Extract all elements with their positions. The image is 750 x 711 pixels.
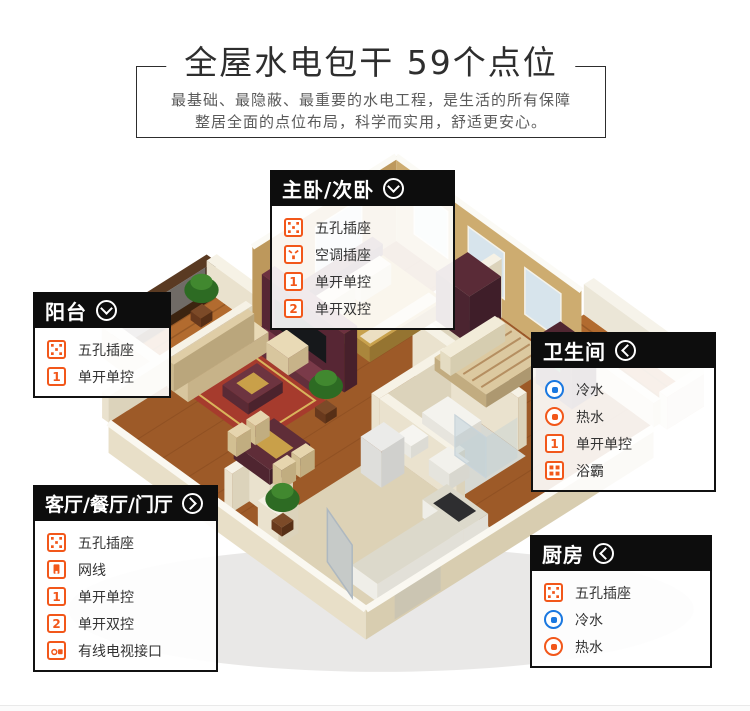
chevron-right-circle-icon xyxy=(182,493,203,514)
ac-socket-icon xyxy=(284,245,303,264)
callout-bedroom-body: 五孔插座 空调插座 1 单开单控 2 单开双控 xyxy=(270,206,455,330)
callout-balcony: 阳台 五孔插座 1 单开单控 xyxy=(33,292,171,398)
item-label: 五孔插座 xyxy=(315,218,371,238)
item-label: 单开单控 xyxy=(315,272,371,292)
list-item: 浴霸 xyxy=(545,457,702,484)
single-switch-icon: 1 xyxy=(47,367,66,386)
item-label: 单开双控 xyxy=(315,299,371,319)
list-item: 1 单开单控 xyxy=(284,268,441,295)
callout-balcony-header: 阳台 xyxy=(33,292,171,328)
item-label: 冷水 xyxy=(576,380,604,400)
item-label: 有线电视接口 xyxy=(78,641,162,661)
list-item: 2 单开双控 xyxy=(284,295,441,322)
banner-subtitle-line2: 整居全面的点位布局，科学而实用，舒适更安心。 xyxy=(136,112,606,132)
item-label: 浴霸 xyxy=(576,461,604,481)
item-label: 热水 xyxy=(576,407,604,427)
five-hole-socket-icon xyxy=(544,583,563,602)
callout-bathroom-body: 冷水 热水 1 单开单控 浴霸 xyxy=(531,368,716,492)
network-port-icon xyxy=(47,560,66,579)
banner-subtitle-line1: 最基础、最隐蔽、最重要的水电工程，是生活的所有保障 xyxy=(136,90,606,110)
list-item: 有线电视接口 xyxy=(47,637,204,664)
page-title: 全屋水电包干 59个点位 xyxy=(166,40,575,86)
item-label: 热水 xyxy=(575,637,603,657)
five-hole-socket-icon xyxy=(47,340,66,359)
callout-kitchen-body: 五孔插座 冷水 热水 xyxy=(530,571,712,668)
item-label: 五孔插座 xyxy=(78,533,134,553)
cold-water-icon xyxy=(545,380,564,399)
list-item: 五孔插座 xyxy=(47,336,157,363)
item-label: 五孔插座 xyxy=(78,340,134,360)
cold-water-icon xyxy=(544,610,563,629)
callout-kitchen-header: 厨房 xyxy=(530,535,712,571)
callout-living-header: 客厅/餐厅/门厅 xyxy=(33,485,218,521)
hot-water-icon xyxy=(545,407,564,426)
callout-living: 客厅/餐厅/门厅 五孔插座 网线 1 单开单控 2 单开双控 有线电视接口 xyxy=(33,485,218,672)
callout-title: 卫生间 xyxy=(543,336,606,365)
item-label: 单开单控 xyxy=(78,367,134,387)
list-item: 五孔插座 xyxy=(284,214,441,241)
bath-heater-icon xyxy=(545,461,564,480)
callout-bedroom: 主卧/次卧 五孔插座 空调插座 1 单开单控 2 单开双控 xyxy=(270,170,455,330)
list-item: 热水 xyxy=(544,633,698,660)
callout-living-body: 五孔插座 网线 1 单开单控 2 单开双控 有线电视接口 xyxy=(33,521,218,672)
section-divider xyxy=(0,705,750,711)
hot-water-icon xyxy=(544,637,563,656)
callout-bathroom-header: 卫生间 xyxy=(531,332,716,368)
banner: 全屋水电包干 59个点位 最基础、最隐蔽、最重要的水电工程，是生活的所有保障 整… xyxy=(136,28,606,140)
item-label: 单开单控 xyxy=(78,587,134,607)
callout-title: 厨房 xyxy=(542,539,584,568)
list-item: 空调插座 xyxy=(284,241,441,268)
list-item: 五孔插座 xyxy=(544,579,698,606)
callout-title: 客厅/餐厅/门厅 xyxy=(45,490,173,517)
chevron-left-circle-icon xyxy=(615,340,636,361)
double-switch-icon: 2 xyxy=(284,299,303,318)
list-item: 1 单开单控 xyxy=(47,363,157,390)
callout-title: 主卧/次卧 xyxy=(282,174,374,203)
list-item: 1 单开单控 xyxy=(545,430,702,457)
double-switch-icon: 2 xyxy=(47,614,66,633)
item-label: 网线 xyxy=(78,560,106,580)
list-item: 冷水 xyxy=(545,376,702,403)
list-item: 1 单开单控 xyxy=(47,583,204,610)
chevron-down-circle-icon xyxy=(383,178,404,199)
callout-bathroom: 卫生间 冷水 热水 1 单开单控 浴霸 xyxy=(531,332,716,492)
five-hole-socket-icon xyxy=(47,533,66,552)
list-item: 热水 xyxy=(545,403,702,430)
callout-balcony-body: 五孔插座 1 单开单控 xyxy=(33,328,171,398)
single-switch-icon: 1 xyxy=(284,272,303,291)
chevron-down-circle-icon xyxy=(96,300,117,321)
five-hole-socket-icon xyxy=(284,218,303,237)
list-item: 冷水 xyxy=(544,606,698,633)
item-label: 冷水 xyxy=(575,610,603,630)
tv-port-icon xyxy=(47,641,66,660)
item-label: 单开单控 xyxy=(576,434,632,454)
chevron-left-circle-icon xyxy=(593,543,614,564)
callout-title: 阳台 xyxy=(45,296,87,325)
item-label: 五孔插座 xyxy=(575,583,631,603)
single-switch-icon: 1 xyxy=(545,434,564,453)
list-item: 网线 xyxy=(47,556,204,583)
callout-kitchen: 厨房 五孔插座 冷水 热水 xyxy=(530,535,712,668)
single-switch-icon: 1 xyxy=(47,587,66,606)
promo-page: 全屋水电包干 59个点位 最基础、最隐蔽、最重要的水电工程，是生活的所有保障 整… xyxy=(0,0,750,711)
item-label: 单开双控 xyxy=(78,614,134,634)
item-label: 空调插座 xyxy=(315,245,371,265)
callout-bedroom-header: 主卧/次卧 xyxy=(270,170,455,206)
list-item: 2 单开双控 xyxy=(47,610,204,637)
list-item: 五孔插座 xyxy=(47,529,204,556)
